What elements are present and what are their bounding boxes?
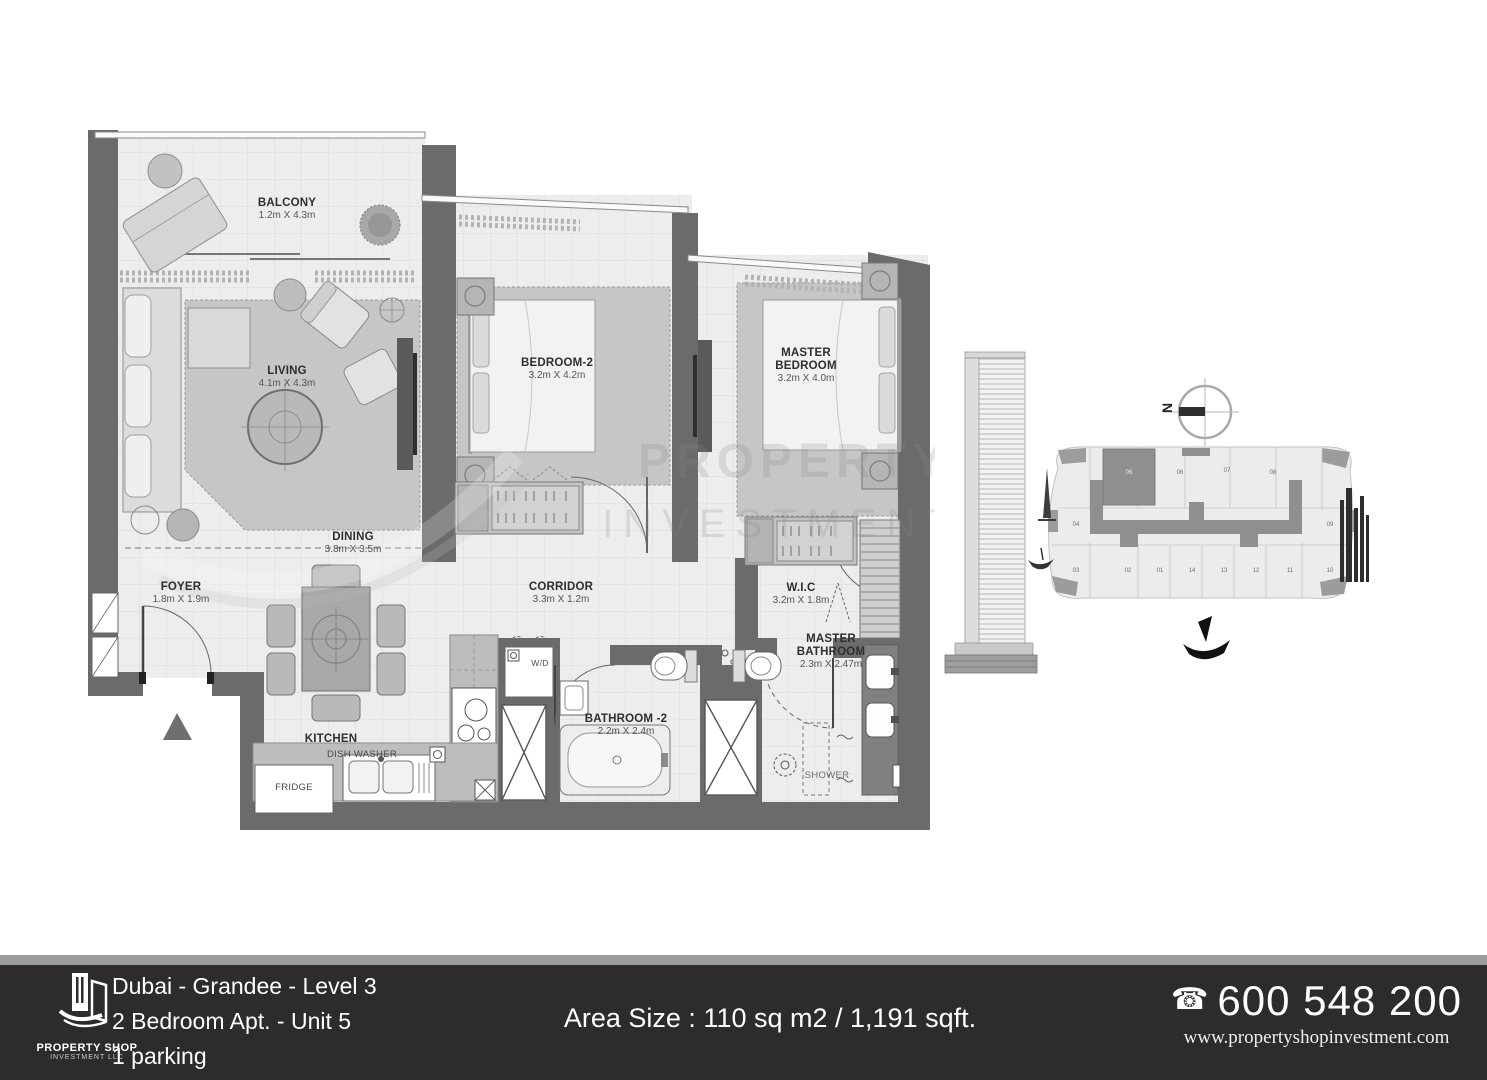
floor-plan: PROPERTY INVESTMENT BALCONY 1.2m X 4.3m … (85, 125, 935, 840)
level-key-plan (1048, 447, 1356, 599)
listing-info: Dubai - Grandee - Level 3 2 Bedroom Apt.… (112, 969, 377, 1074)
landmark-abra-icon (1183, 616, 1230, 659)
contact-block: ☎600 548 200 www.propertyshopinvestment.… (1171, 977, 1462, 1049)
key-plan-drawing: N (940, 350, 1400, 680)
phone-number: ☎600 548 200 (1171, 977, 1462, 1025)
floor-plan-drawing: PROPERTY INVESTMENT (85, 125, 935, 840)
footer-bar: PROPERTY SHOP INVESTMENT LLC Dubai - Gra… (0, 965, 1487, 1080)
watermark-line1: PROPERTY (638, 435, 935, 488)
website-url: www.propertyshopinvestment.com (1171, 1027, 1462, 1049)
north-compass: N (1159, 378, 1239, 446)
building-elevation (945, 352, 1037, 673)
highlighted-unit (1103, 449, 1155, 505)
flyer-canvas: PROPERTY INVESTMENT BALCONY 1.2m X 4.3m … (0, 0, 1487, 1080)
company-logo-icon (54, 971, 120, 1035)
listing-parking: 1 parking (112, 1039, 377, 1074)
listing-location: Dubai - Grandee - Level 3 (112, 969, 377, 1004)
key-plan-panel: N (940, 350, 1400, 680)
phone-icon: ☎ (1171, 983, 1209, 1016)
north-label: N (1159, 403, 1175, 413)
phone-number-text: 600 548 200 (1217, 977, 1462, 1024)
footer-divider-strip (0, 955, 1487, 965)
entrance-marker (163, 713, 192, 740)
watermark-line2: INVESTMENT (602, 502, 935, 546)
listing-unit: 2 Bedroom Apt. - Unit 5 (112, 1004, 377, 1039)
area-size: Area Size : 110 sq m2 / 1,191 sqft. (450, 1003, 1090, 1034)
